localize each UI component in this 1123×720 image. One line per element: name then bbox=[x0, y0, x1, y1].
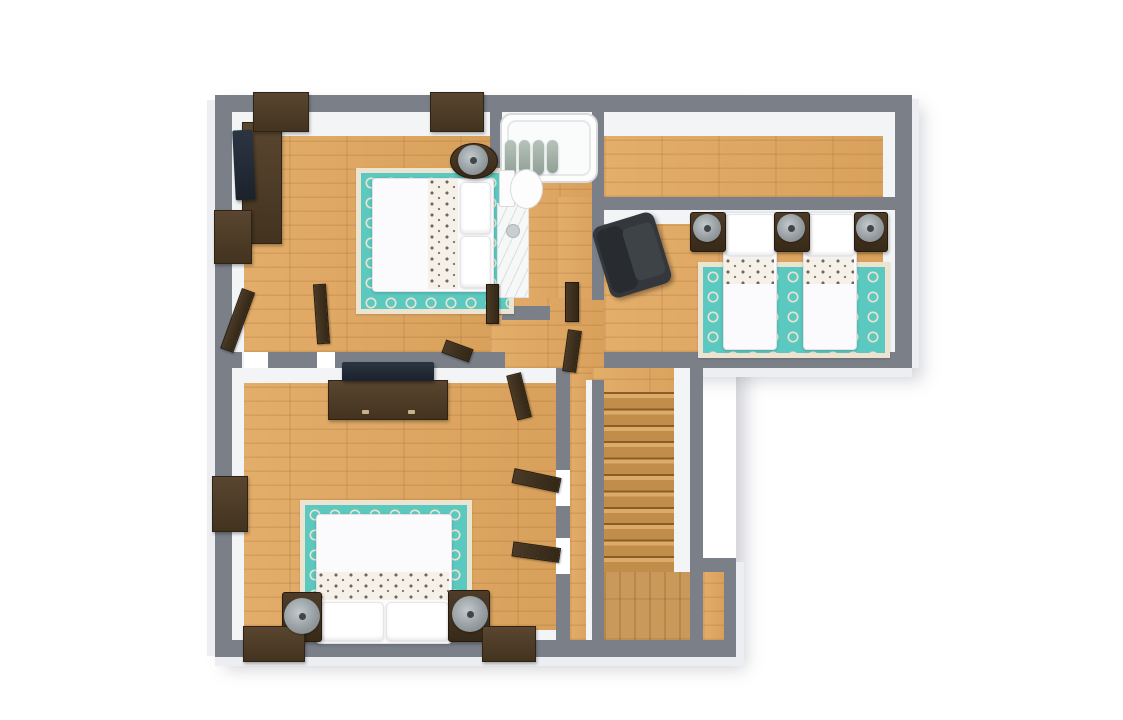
wall-divider-seg2 bbox=[268, 352, 317, 368]
twin-bed-1-blanket-strip bbox=[724, 258, 774, 284]
vanity-counter bbox=[497, 203, 529, 298]
lamp-twin-3 bbox=[856, 214, 884, 242]
wall-dresser-2 bbox=[430, 92, 484, 132]
lamp-top-left bbox=[458, 145, 488, 175]
floor-stepout-strip bbox=[703, 572, 724, 640]
lamp-master-left bbox=[284, 598, 320, 634]
dresser-handle bbox=[408, 410, 415, 414]
wall-dresser-1 bbox=[253, 92, 309, 132]
cabinet-left-wall bbox=[214, 210, 252, 264]
cabinet-south-wall-2 bbox=[482, 626, 536, 662]
open-door bbox=[565, 282, 579, 322]
tv-master bbox=[342, 362, 434, 381]
staircase-treads bbox=[604, 392, 674, 572]
wall-divider-seg1 bbox=[232, 352, 242, 368]
tv-top-left bbox=[232, 130, 256, 201]
blanket-strip-top-left bbox=[428, 179, 458, 289]
toilet-bowl bbox=[510, 169, 543, 209]
blanket-strip-master bbox=[317, 572, 449, 600]
lamp-twin-2 bbox=[777, 214, 805, 242]
shower-curtain-fold bbox=[547, 140, 558, 173]
wall-hall-top-right-divider bbox=[604, 197, 896, 210]
wall-exterior-left bbox=[215, 95, 232, 657]
twin-bed-1-pillow bbox=[725, 214, 775, 256]
twin-bed-2-blanket-strip bbox=[804, 258, 854, 284]
wall-master-east-seg2 bbox=[556, 506, 570, 538]
exterior-face-under-twin-room bbox=[703, 368, 912, 377]
wall-exterior-right-upper bbox=[895, 95, 912, 368]
open-door bbox=[486, 284, 499, 324]
lamp-twin-1 bbox=[693, 214, 721, 242]
pillow bbox=[460, 236, 491, 288]
floor-stair-landing bbox=[604, 572, 690, 640]
reveal-stair-right bbox=[674, 368, 690, 572]
wall-master-east-seg3 bbox=[556, 574, 570, 642]
lamp-master-right bbox=[452, 596, 488, 632]
pillow bbox=[321, 602, 384, 641]
sink-basin bbox=[506, 224, 520, 238]
cabinet-west-wall bbox=[212, 476, 248, 532]
floor-plan-render bbox=[0, 0, 1123, 720]
long-dresser bbox=[328, 380, 448, 420]
shower-curtain-fold bbox=[533, 140, 544, 175]
wall-stepout-right bbox=[724, 558, 736, 657]
wall-stair-right bbox=[690, 368, 703, 640]
wall-stair-left bbox=[592, 380, 604, 642]
pillow bbox=[386, 602, 449, 641]
dresser-handle bbox=[362, 410, 369, 414]
wall-exterior-top bbox=[215, 95, 912, 112]
exterior-face-stepout bbox=[736, 562, 744, 657]
exterior-face-right-upper bbox=[911, 99, 919, 368]
pillow bbox=[460, 182, 491, 234]
twin-bed-2-pillow bbox=[805, 214, 855, 256]
wall-master-east-seg1 bbox=[556, 368, 570, 470]
